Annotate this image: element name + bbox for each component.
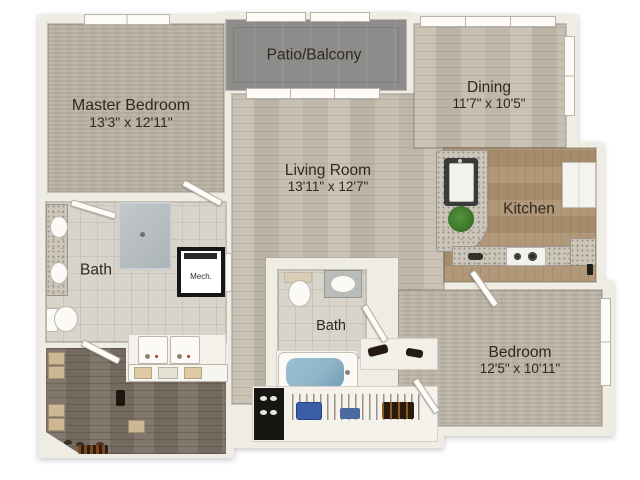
bedroom-window bbox=[600, 298, 611, 386]
vanity-sink-1 bbox=[50, 216, 68, 238]
laundry-basket-1 bbox=[134, 367, 152, 379]
laundry-basket-2 bbox=[158, 367, 178, 379]
patio-rail-right bbox=[310, 12, 370, 22]
closet-box-4 bbox=[48, 418, 65, 431]
dining-window-right bbox=[564, 36, 575, 116]
counter-item bbox=[468, 253, 483, 260]
dining-label: Dining 11'7" x 10'5" bbox=[452, 79, 525, 111]
shoe-1 bbox=[64, 440, 72, 445]
vanity-sink-2 bbox=[50, 262, 68, 284]
mech-door bbox=[225, 253, 232, 292]
master-bedroom-window bbox=[84, 14, 170, 25]
closet-box-1 bbox=[48, 352, 65, 365]
patio-sliding-door bbox=[246, 88, 380, 99]
rack-shoe-3 bbox=[260, 410, 267, 415]
toilet-bowl-master bbox=[54, 306, 78, 332]
patio-label: Patio/Balcony bbox=[267, 46, 362, 63]
closet-box-2 bbox=[48, 366, 65, 379]
plant-icon bbox=[448, 206, 474, 232]
kitchen-counter-right bbox=[570, 238, 596, 266]
bedroom-label: Bedroom 12'5" x 10'11" bbox=[480, 344, 561, 376]
bathtub-water bbox=[286, 358, 344, 388]
patio-rail-left bbox=[246, 12, 306, 22]
fridge bbox=[562, 162, 596, 208]
burner-1 bbox=[514, 253, 521, 260]
island-sink-basin bbox=[449, 163, 474, 202]
washer-light bbox=[155, 355, 158, 358]
master-bath-label: Bath bbox=[80, 261, 112, 278]
kitchen-wall-item bbox=[587, 264, 593, 275]
bath2-label: Bath bbox=[316, 318, 346, 334]
laundry-basket-3 bbox=[184, 367, 202, 379]
closet-rug bbox=[78, 445, 108, 454]
closet-box-5 bbox=[128, 420, 145, 433]
master-bedroom-label: Master Bedroom 13'3" x 12'11" bbox=[72, 97, 190, 131]
closet-bag-blue bbox=[296, 402, 322, 420]
living-room-label: Living Room 13'11" x 12'7" bbox=[285, 162, 371, 194]
stove bbox=[506, 247, 546, 266]
bathtub-faucet bbox=[345, 370, 350, 375]
rack-shoe-4 bbox=[270, 410, 277, 415]
closet-chest bbox=[382, 402, 414, 419]
washer-knob bbox=[145, 354, 150, 359]
closet-folded-blue bbox=[340, 408, 360, 419]
rack-shoe-1 bbox=[260, 396, 267, 401]
island-faucet bbox=[458, 159, 462, 163]
closet-garment bbox=[116, 390, 125, 406]
dryer bbox=[170, 336, 200, 364]
shoe-rack bbox=[254, 388, 284, 440]
toilet-bowl-bath2 bbox=[288, 280, 311, 307]
dryer-knob bbox=[177, 354, 182, 359]
water-heater bbox=[184, 253, 217, 259]
burner-2 bbox=[528, 252, 537, 261]
shower bbox=[118, 202, 172, 270]
rack-shoe-2 bbox=[270, 396, 277, 401]
kitchen-label: Kitchen bbox=[503, 200, 555, 217]
floor-plan: Mech. bbox=[0, 0, 640, 480]
bath2-sink-basin bbox=[330, 275, 356, 293]
bath2-sink-counter bbox=[324, 270, 362, 298]
dryer-light bbox=[187, 355, 190, 358]
island-sink bbox=[444, 158, 478, 206]
washer bbox=[138, 336, 168, 364]
shower-drain bbox=[140, 232, 145, 237]
dining-window-top bbox=[420, 16, 556, 27]
mech-label: Mech. bbox=[190, 266, 212, 284]
closet-box-3 bbox=[48, 404, 65, 417]
